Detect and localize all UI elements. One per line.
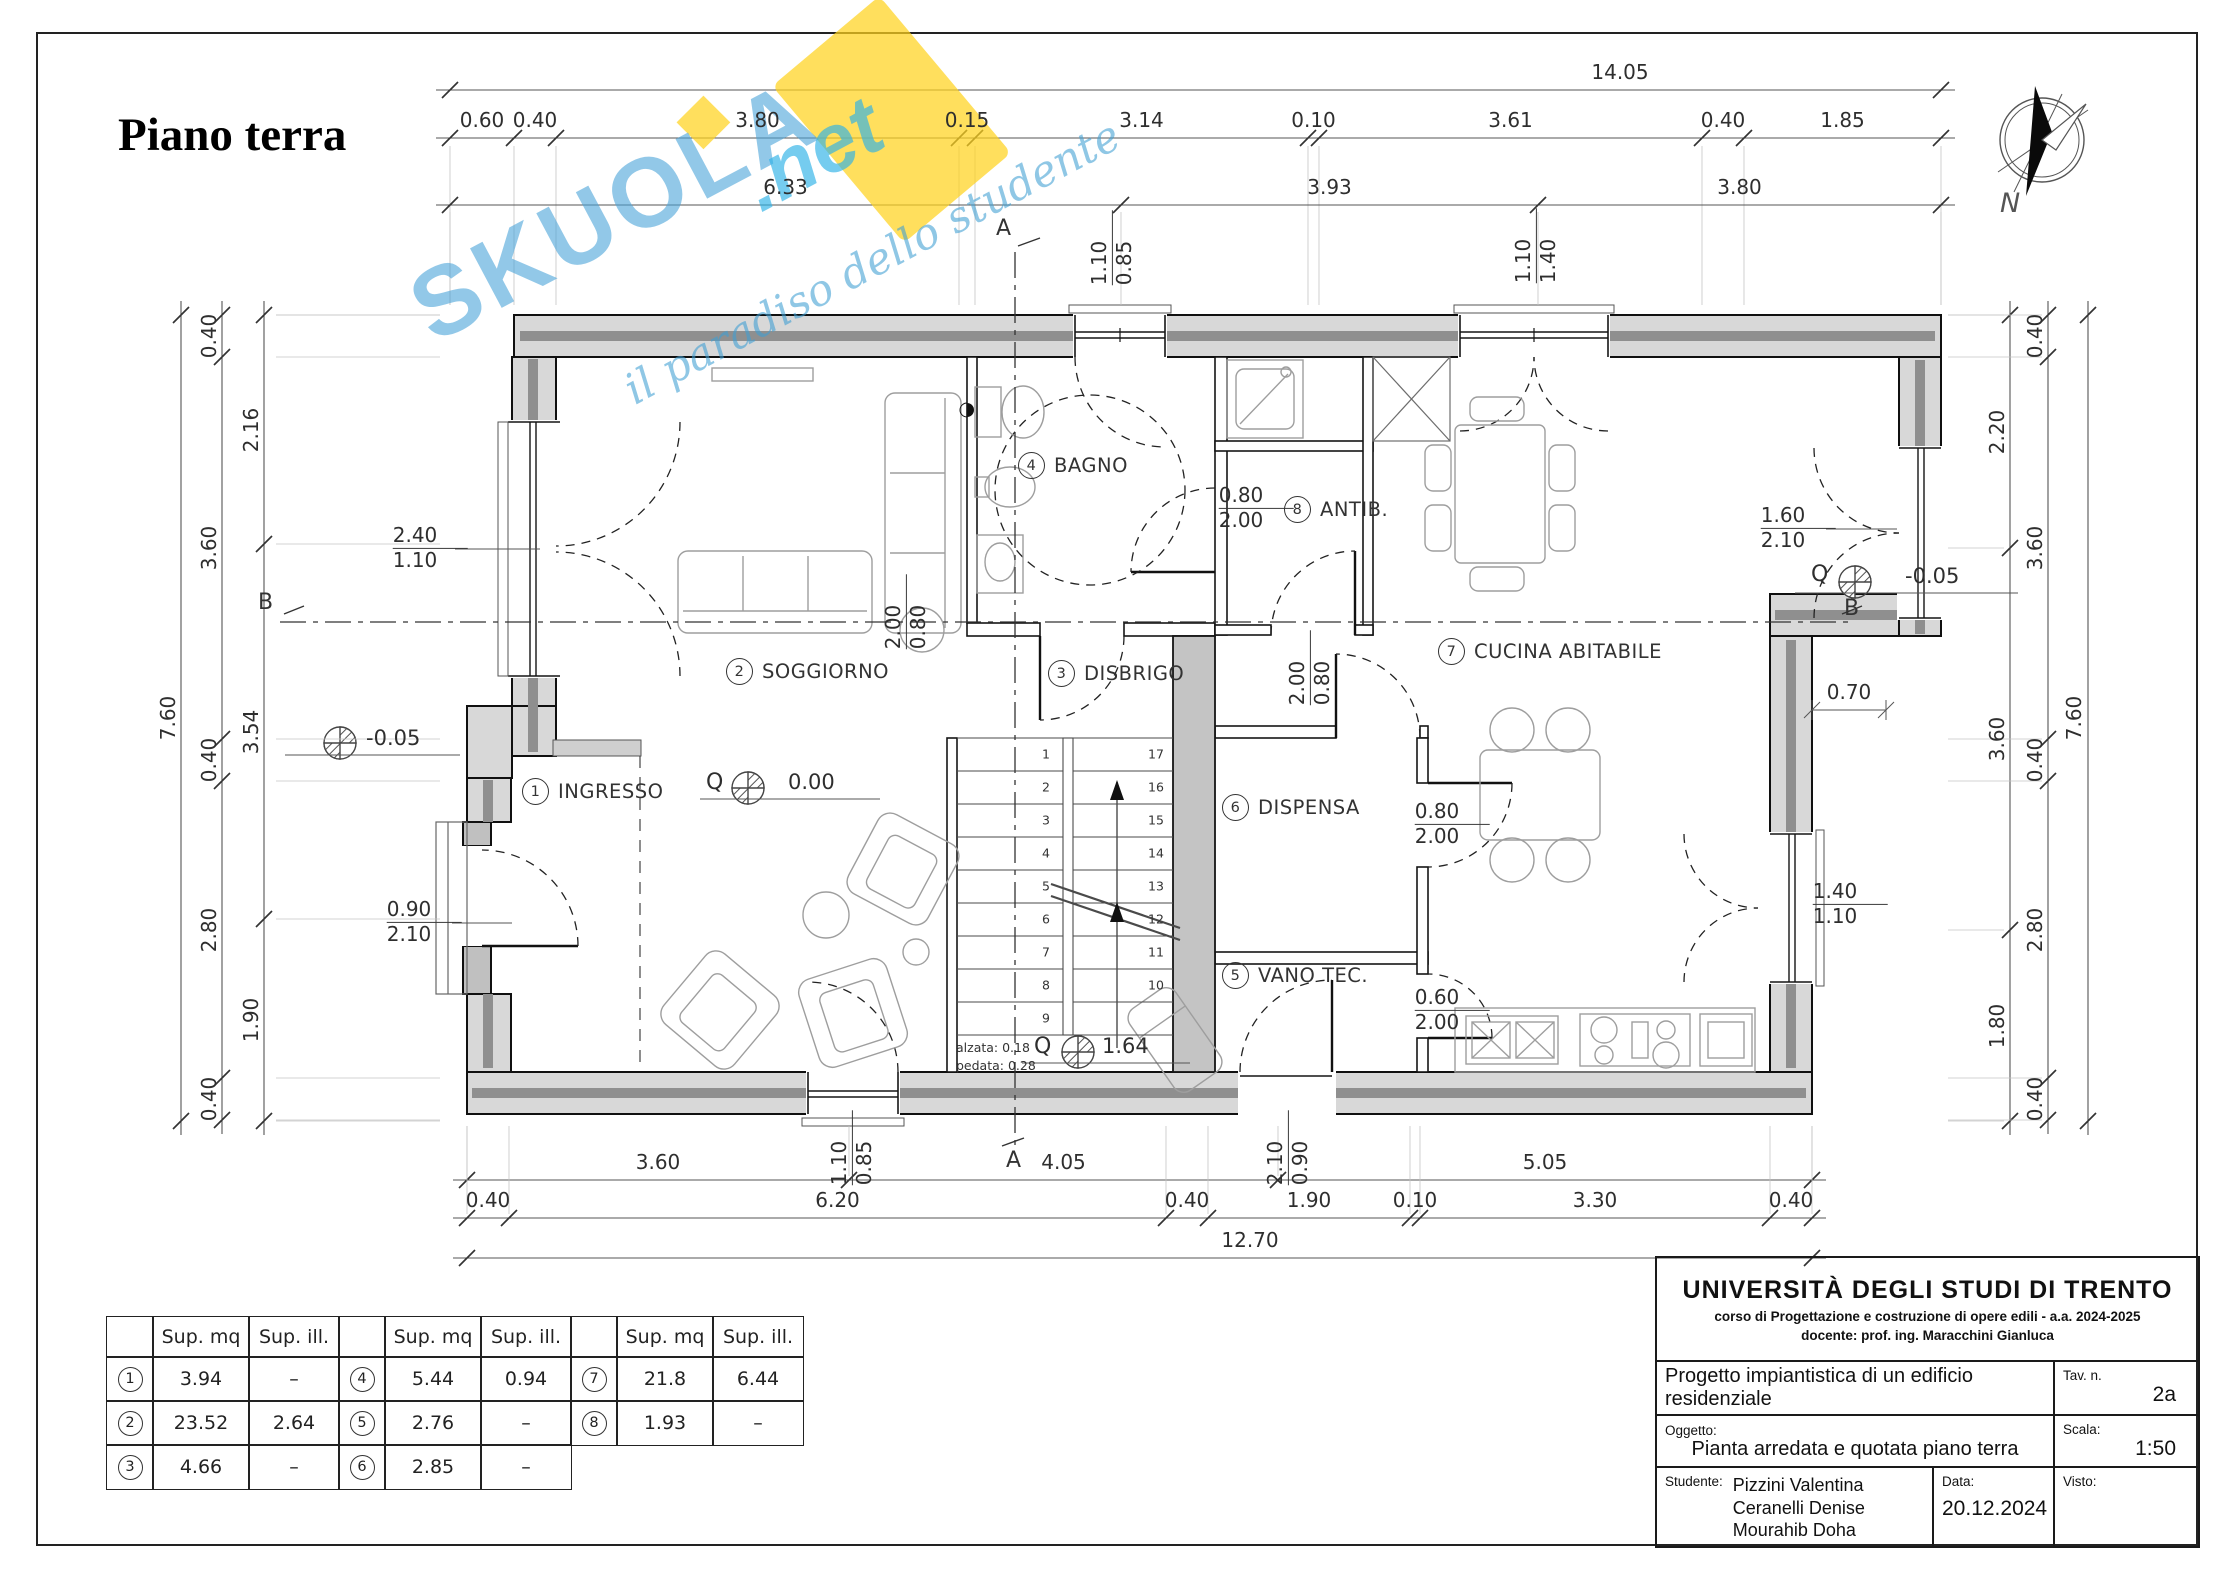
drawing-sheet: Piano terra [0, 0, 2233, 1579]
quota-stairs-prefix: Q [1034, 1034, 1051, 1059]
room-label-bagno: 4BAGNO [1018, 452, 1128, 479]
stair-riser-note: alzata: 0.18 [956, 1040, 1030, 1055]
stair-step-number: 8 [1042, 978, 1050, 993]
student-label: Studente: [1665, 1474, 1723, 1542]
area-table-sup-mq: 1.93 [616, 1400, 714, 1446]
title-block: UNIVERSITÀ DEGLI STUDI DI TRENTO corso d… [1655, 1256, 2200, 1548]
dim-label: 5.05 [1523, 1150, 1568, 1174]
room-name: ANTIB. [1320, 498, 1388, 521]
dim-label: 14.05 [1591, 60, 1648, 84]
stair-step-number: 4 [1042, 846, 1050, 861]
opening-size-label: 2.100.90 [1265, 1111, 1311, 1186]
section-b-right-label: B [1844, 596, 1859, 621]
opening-size-label: 2.401.10 [393, 525, 468, 571]
room-number-badge: 4 [1018, 452, 1045, 479]
room-number-badge: 8 [1284, 496, 1311, 523]
stair-step-number: 6 [1042, 912, 1050, 927]
area-table-room-number: 7 [570, 1356, 618, 1402]
area-table-header: Sup. ill. [248, 1316, 340, 1358]
stair-step-number: 17 [1148, 747, 1164, 762]
university-name: UNIVERSITÀ DEGLI STUDI DI TRENTO [1657, 1276, 2198, 1305]
room-number-badge: 6 [1222, 794, 1249, 821]
room-name: BAGNO [1054, 454, 1128, 477]
teacher-name: docente: prof. ing. Maracchini Gianluca [1657, 1328, 2198, 1343]
dim-label: 0.10 [1291, 108, 1336, 132]
opening-size-label: 0.802.00 [1415, 801, 1490, 847]
room-label-vano-tec: 5VANO TEC. [1222, 962, 1368, 989]
title-block-header: UNIVERSITÀ DEGLI STUDI DI TRENTO corso d… [1657, 1258, 2198, 1362]
room-name: VANO TEC. [1258, 964, 1368, 987]
opening-size-label: 1.100.85 [829, 1111, 875, 1186]
room-label-antib: 8ANTIB. [1284, 496, 1388, 523]
room-name: DISPENSA [1258, 796, 1360, 819]
scale-label: Scala: [2063, 1422, 2190, 1437]
dim-label: 0.15 [945, 108, 990, 132]
area-table-sup-mq: 4.66 [152, 1444, 250, 1490]
scale-value: 1:50 [2063, 1437, 2190, 1461]
area-table-sup-mq: 5.44 [384, 1356, 482, 1402]
opening-size-label: 0.802.00 [1219, 485, 1294, 531]
area-table-sup-ill: – [248, 1356, 340, 1402]
stair-step-number: 1 [1042, 747, 1050, 762]
room-name: DISBRIGO [1084, 662, 1184, 685]
dim-label: 3.60 [2023, 526, 2047, 571]
quota-right: -0.05 [1905, 564, 1959, 588]
area-table-room-number: 2 [106, 1400, 154, 1446]
area-table-header: Sup. ill. [712, 1316, 804, 1358]
area-table-sup-ill: 6.44 [712, 1356, 804, 1402]
dim-label: 3.61 [1488, 108, 1533, 132]
area-table-sup-mq: 23.52 [152, 1400, 250, 1446]
room-label-cucina-abitabile: 7CUCINA ABITABILE [1438, 638, 1662, 665]
opening-size-label: 0.602.00 [1415, 987, 1490, 1033]
dim-label: 12.70 [1221, 1228, 1278, 1252]
opening-size-label: 1.101.40 [1513, 209, 1559, 284]
opening-size-label: 1.100.85 [1089, 211, 1135, 286]
student-name: Mourahib Doha [1733, 1519, 1865, 1542]
area-table-room-number: 5 [338, 1400, 386, 1446]
dim-label: 3.30 [1573, 1188, 1618, 1212]
dim-label: 0.10 [1393, 1188, 1438, 1212]
stair-step-number: 12 [1148, 912, 1164, 927]
dim-label: 2.16 [239, 407, 263, 452]
room-number-badge: 2 [726, 658, 753, 685]
opening-size-label: 1.401.10 [1813, 881, 1888, 927]
north-label: N [2000, 188, 2020, 219]
dim-label: 0.40 [197, 1077, 221, 1122]
dim-label: 3.54 [239, 709, 263, 754]
stair-step-number: 11 [1148, 945, 1164, 960]
stair-step-number: 14 [1148, 846, 1164, 861]
area-table-sup-ill: 0.94 [480, 1356, 572, 1402]
area-table-room-number: 8 [570, 1400, 618, 1446]
project-title: Progetto impiantistica di un edificio re… [1657, 1362, 2053, 1414]
stair-step-number: 10 [1148, 978, 1164, 993]
opening-size-label: 2.000.80 [1287, 631, 1333, 706]
object-title: Pianta arredata e quotata piano terra [1665, 1438, 2045, 1461]
area-table-room-number: 1 [106, 1356, 154, 1402]
area-table-room-number: 3 [106, 1444, 154, 1490]
dim-label: 1.90 [1287, 1188, 1332, 1212]
area-table-header [338, 1316, 386, 1358]
room-name: INGRESSO [558, 780, 663, 803]
quota-living-prefix: Q [706, 770, 723, 795]
area-table-sup-mq: 2.85 [384, 1444, 482, 1490]
dim-label: 0.40 [2023, 1077, 2047, 1122]
quota-left: -0.05 [366, 726, 420, 750]
stair-step-number: 2 [1042, 780, 1050, 795]
area-table-room-number: 4 [338, 1356, 386, 1402]
dim-label: 3.60 [636, 1150, 681, 1174]
area-table-empty [570, 1444, 618, 1490]
room-name: SOGGIORNO [762, 660, 889, 683]
dim-label: 4.05 [1041, 1150, 1086, 1174]
quota-stairs: 1.64 [1102, 1034, 1149, 1058]
room-number-badge: 5 [1222, 962, 1249, 989]
room-area-table: Sup. mqSup. ill.Sup. mqSup. ill.Sup. mqS… [107, 1317, 803, 1489]
room-number-badge: 1 [522, 778, 549, 805]
area-table-sup-mq: 2.76 [384, 1400, 482, 1446]
dim-label: 3.93 [1307, 175, 1352, 199]
dim-label: 0.40 [1701, 108, 1746, 132]
area-table-header: Sup. mq [384, 1316, 482, 1358]
dim-label: 0.40 [197, 314, 221, 359]
tav-number: 2a [2063, 1383, 2190, 1407]
stair-step-number: 3 [1042, 813, 1050, 828]
room-label-soggiorno: 2SOGGIORNO [726, 658, 889, 685]
area-table-sup-mq: 3.94 [152, 1356, 250, 1402]
area-table-header [570, 1316, 618, 1358]
area-table-header: Sup. mq [616, 1316, 714, 1358]
dim-label: 6.33 [763, 175, 808, 199]
tav-label: Tav. n. [2063, 1368, 2190, 1383]
room-number-badge: 7 [1438, 638, 1465, 665]
dim-label: 0.60 [460, 108, 505, 132]
room-label-disbrigo: 3DISBRIGO [1048, 660, 1184, 687]
dim-label: 0.40 [466, 1188, 511, 1212]
dim-label: 0.40 [197, 738, 221, 783]
dim-label: 0.40 [513, 108, 558, 132]
area-table-header: Sup. ill. [480, 1316, 572, 1358]
section-b-left-label: B [258, 590, 273, 615]
student-name: Pizzini Valentina [1733, 1474, 1865, 1497]
dim-label: 3.60 [1985, 717, 2009, 762]
area-table-empty [616, 1444, 714, 1490]
object-label: Oggetto: [1665, 1423, 1717, 1438]
dim-label: 6.20 [815, 1188, 860, 1212]
stair-step-number: 16 [1148, 780, 1164, 795]
stair-step-number: 15 [1148, 813, 1164, 828]
stair-step-number: 9 [1042, 1011, 1050, 1026]
dim-label: 2.20 [1985, 409, 2009, 454]
student-name: Ceranelli Denise [1733, 1497, 1865, 1520]
course-name: corso di Progettazione e costruzione di … [1657, 1309, 2198, 1324]
opening-size-label: 0.70 [1827, 680, 1872, 704]
opening-size-label: 0.902.10 [387, 899, 462, 945]
dim-label: 0.40 [1165, 1188, 1210, 1212]
dim-label: 2.80 [197, 907, 221, 952]
area-table-room-number: 6 [338, 1444, 386, 1490]
dim-label: 0.40 [2023, 314, 2047, 359]
area-table-sup-ill: – [480, 1444, 572, 1490]
dim-label: 0.40 [2023, 738, 2047, 783]
opening-size-label: 2.000.80 [883, 575, 929, 650]
date-label: Data: [1942, 1474, 2045, 1489]
stair-step-number: 7 [1042, 945, 1050, 960]
stair-step-number: 5 [1042, 879, 1050, 894]
visto-label: Visto: [2063, 1474, 2190, 1489]
quota-right-prefix: Q [1811, 562, 1828, 587]
dim-label: 2.80 [2023, 907, 2047, 952]
dim-label: 3.14 [1119, 108, 1164, 132]
room-label-ingresso: 1INGRESSO [522, 778, 663, 805]
area-table-sup-ill: 2.64 [248, 1400, 340, 1446]
area-table-sup-ill: – [480, 1400, 572, 1446]
dim-label: 0.40 [1769, 1188, 1814, 1212]
area-table-sup-ill: – [248, 1444, 340, 1490]
dim-label: 3.80 [1717, 175, 1762, 199]
dim-label: 7.60 [156, 696, 180, 741]
area-table-sup-mq: 21.8 [616, 1356, 714, 1402]
area-table-header: Sup. mq [152, 1316, 250, 1358]
date-value: 20.12.2024 [1942, 1497, 2045, 1521]
dim-label: 1.85 [1820, 108, 1865, 132]
section-a-bottom-label: A [1006, 1148, 1021, 1173]
section-a-top-label: A [996, 216, 1011, 241]
dim-label: 1.80 [1985, 1003, 2009, 1048]
opening-size-label: 1.602.10 [1761, 505, 1836, 551]
dim-label: 3.80 [735, 108, 780, 132]
stair-step-number: 13 [1148, 879, 1164, 894]
dim-label: 3.60 [197, 526, 221, 571]
area-table-empty [712, 1444, 804, 1490]
dim-label: 1.90 [239, 998, 263, 1043]
room-number-badge: 3 [1048, 660, 1075, 687]
quota-living: 0.00 [788, 770, 835, 794]
room-label-dispensa: 6DISPENSA [1222, 794, 1360, 821]
dim-label: 7.60 [2062, 696, 2086, 741]
stair-tread-note: pedata: 0.28 [956, 1058, 1036, 1073]
room-name: CUCINA ABITABILE [1474, 640, 1662, 663]
area-table-header [106, 1316, 154, 1358]
area-table-sup-ill: – [712, 1400, 804, 1446]
